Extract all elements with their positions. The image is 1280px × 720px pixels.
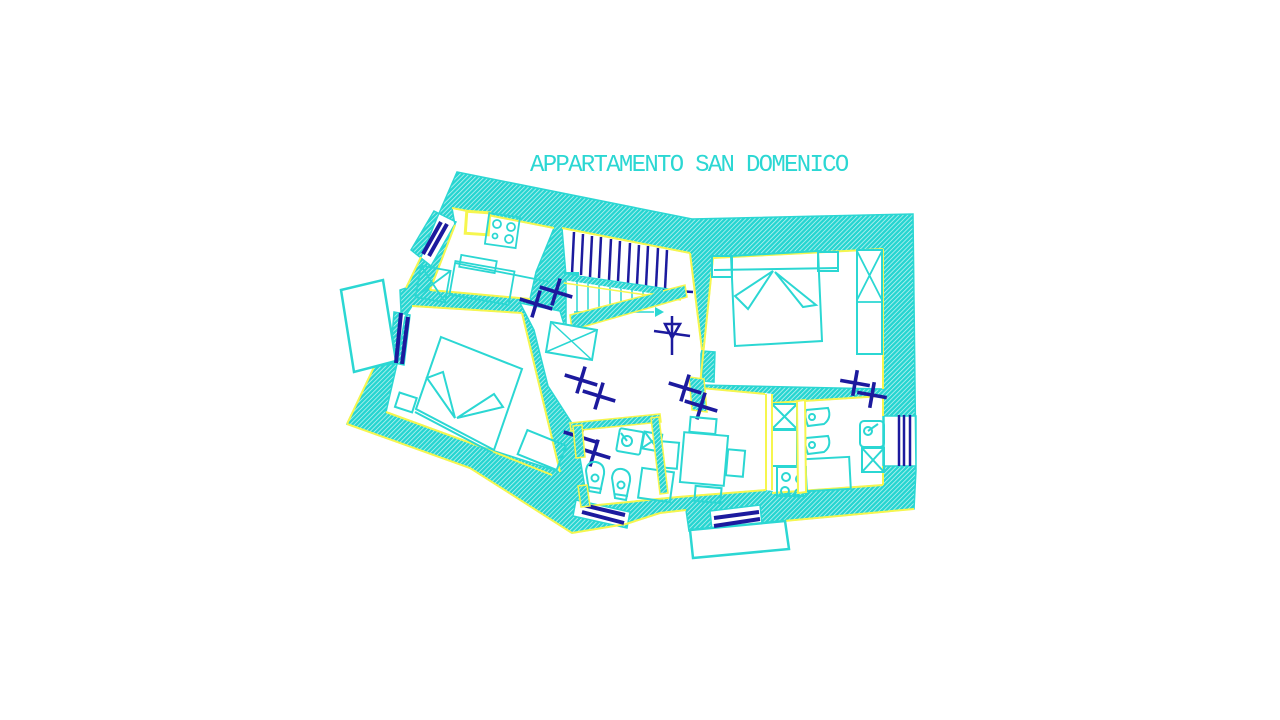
svg-text:APPARTAMENTO SAN DOMENICO: APPARTAMENTO SAN DOMENICO [530, 152, 849, 179]
